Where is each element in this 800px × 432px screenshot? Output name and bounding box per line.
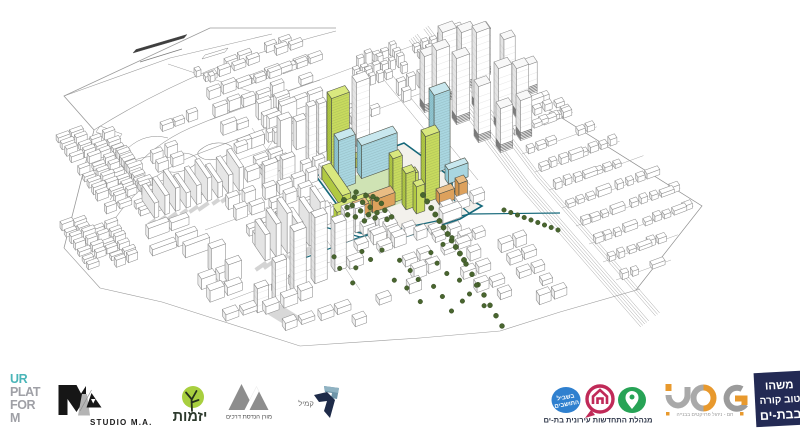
svg-text:קמיל: קמיל (298, 399, 314, 408)
svg-text:חם - ניהול פרויקטים בבנייה: חם - ניהול פרויקטים בבנייה (677, 411, 734, 418)
svg-text:משהו: משהו (765, 379, 794, 392)
svg-text:מנהלת התחדשות עירונית בת-ים: מנהלת התחדשות עירונית בת-ים (543, 416, 652, 425)
svg-text:UR: UR (10, 372, 28, 386)
svg-text:יזמות: יזמות (173, 409, 208, 425)
svg-text:בבת-ים: בבת-ים (760, 407, 800, 423)
svg-text:מורן הנדסת דרכים: מורן הנדסת דרכים (226, 415, 272, 421)
svg-text:PLAT: PLAT (10, 385, 41, 399)
svg-text:M: M (10, 411, 20, 425)
svg-text:טוב קורה: טוב קורה (759, 394, 800, 407)
svg-text:STUDIO M.A.: STUDIO M.A. (90, 418, 153, 427)
svg-text:FOR: FOR (10, 398, 36, 412)
